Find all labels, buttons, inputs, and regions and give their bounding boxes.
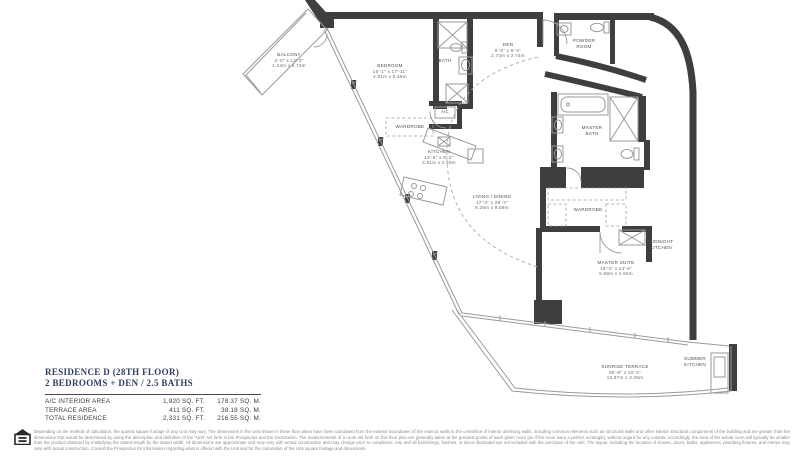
room-name: SUMMER KITCHEN [678, 356, 712, 367]
room-name: MIDNIGHT KITCHEN [644, 239, 678, 250]
midnight-kitchen-appliance [619, 230, 645, 245]
equal-housing-opportunity-icon [14, 429, 31, 445]
master-suite-label: MASTER SUITE 19'-3" x 14'-9" 5.86m x 4.5… [598, 260, 635, 277]
kitchen-label: KITCHEN 12'-6" x 8'-2" 3.81m x 2.49m [422, 149, 456, 166]
midnight-kitchen-label: MIDNIGHT KITCHEN [644, 239, 678, 250]
wardrobe-bedroom-label: WARDROBE [396, 124, 425, 130]
title-block: RESIDENCE D (28TH FLOOR) 2 BEDROOMS + DE… [45, 367, 261, 423]
area-sqft-cell: 411 SQ. FT. [143, 406, 205, 415]
area-label-cell: A/C INTERIOR AREA [45, 398, 143, 407]
area-sqft-cell: 2,331 SQ. FT. [143, 415, 205, 424]
living-dining-label: LIVING / DINING 17'-3" x 28'-2" 5.26m x … [473, 194, 512, 211]
room-name: WARDROBE [396, 124, 425, 130]
area-table-row: TOTAL RESIDENCE 2,331 SQ. FT. 216.55 SQ.… [45, 415, 261, 424]
residence-subtitle: 2 BEDROOMS + DEN / 2.5 BATHS [45, 378, 261, 389]
area-table: A/C INTERIOR AREA 1,920 SQ. FT. 178.37 S… [45, 398, 261, 424]
area-table-row: TERRACE AREA 411 SQ. FT. 38.18 SQ. M. [45, 406, 261, 415]
sunrise-terrace-label: SUNRISE TERRACE 35'-8" x 10'-0" 10.87m x… [601, 364, 648, 381]
room-dim-metric: 1.24m x 3.73m [272, 63, 306, 69]
powder-room-label: POWDER ROOM [567, 38, 601, 49]
curved-east-wall [650, 17, 693, 340]
area-sqm-cell: 178.37 SQ. M. [205, 398, 261, 407]
room-dim-metric: 10.87m x 3.05m [601, 375, 648, 381]
area-sqm-cell: 216.55 SQ. M. [205, 415, 261, 424]
room-dim-metric: 5.86m x 4.50m [598, 271, 635, 277]
area-label-cell: TERRACE AREA [45, 406, 143, 415]
soffit-dashed-curve [447, 57, 538, 267]
summer-kitchen-label: SUMMER KITCHEN [678, 356, 712, 367]
area-sqft-cell: 1,920 SQ. FT. [143, 398, 205, 407]
room-name: BEDROOM [373, 63, 407, 69]
bath-label: BATH [439, 58, 452, 64]
room-dim-metric: 5.26m x 8.59m [473, 205, 512, 211]
bedroom-label: BEDROOM 16'-1" x 17'-11" 4.91m x 5.46m [373, 63, 407, 80]
summer-kitchen-counter [711, 353, 728, 393]
foyer-wall-north [556, 56, 646, 80]
terrace-outline [452, 309, 731, 397]
room-name: MASTER BATH [575, 125, 609, 136]
den-label: DEN 9'-0" x 9'-0" 2.74m x 2.74m [491, 42, 525, 59]
ac-closet-label: A/C [441, 109, 449, 114]
area-sqm-cell: 38.18 SQ. M. [205, 406, 261, 415]
balcony-label: BALCONY 4'-0" x 12'-3" 1.24m x 3.73m [272, 52, 306, 69]
room-name: BATH [439, 58, 452, 64]
legal-disclaimer: Depending on the method of calculation, … [34, 429, 790, 452]
room-name: MASTER SUITE [598, 260, 635, 266]
room-name: SUNRISE TERRACE [601, 364, 648, 370]
room-dim-metric: 3.81m x 2.49m [422, 160, 456, 166]
room-dim-metric: 4.91m x 5.46m [373, 74, 407, 80]
room-name: LIVING / DINING [473, 194, 512, 200]
floor-plan-page: BALCONY 4'-0" x 12'-3" 1.24m x 3.73m BED… [0, 0, 800, 457]
area-label-cell: TOTAL RESIDENCE [45, 415, 143, 424]
master-bath-label: MASTER BATH [575, 125, 609, 136]
room-name: WARDROBE [574, 207, 603, 213]
wardrobe-master-label: WARDROBE [574, 207, 603, 213]
room-name: A/C [441, 109, 449, 114]
kitchen-fixtures [400, 128, 483, 205]
room-name: POWDER ROOM [567, 38, 601, 49]
title-divider [45, 394, 261, 395]
area-table-row: A/C INTERIOR AREA 1,920 SQ. FT. 178.37 S… [45, 398, 261, 407]
walls [305, 0, 737, 391]
room-name: BALCONY [272, 52, 306, 58]
room-dim-metric: 2.74m x 2.74m [491, 53, 525, 59]
residence-title: RESIDENCE D (28TH FLOOR) [45, 367, 261, 378]
